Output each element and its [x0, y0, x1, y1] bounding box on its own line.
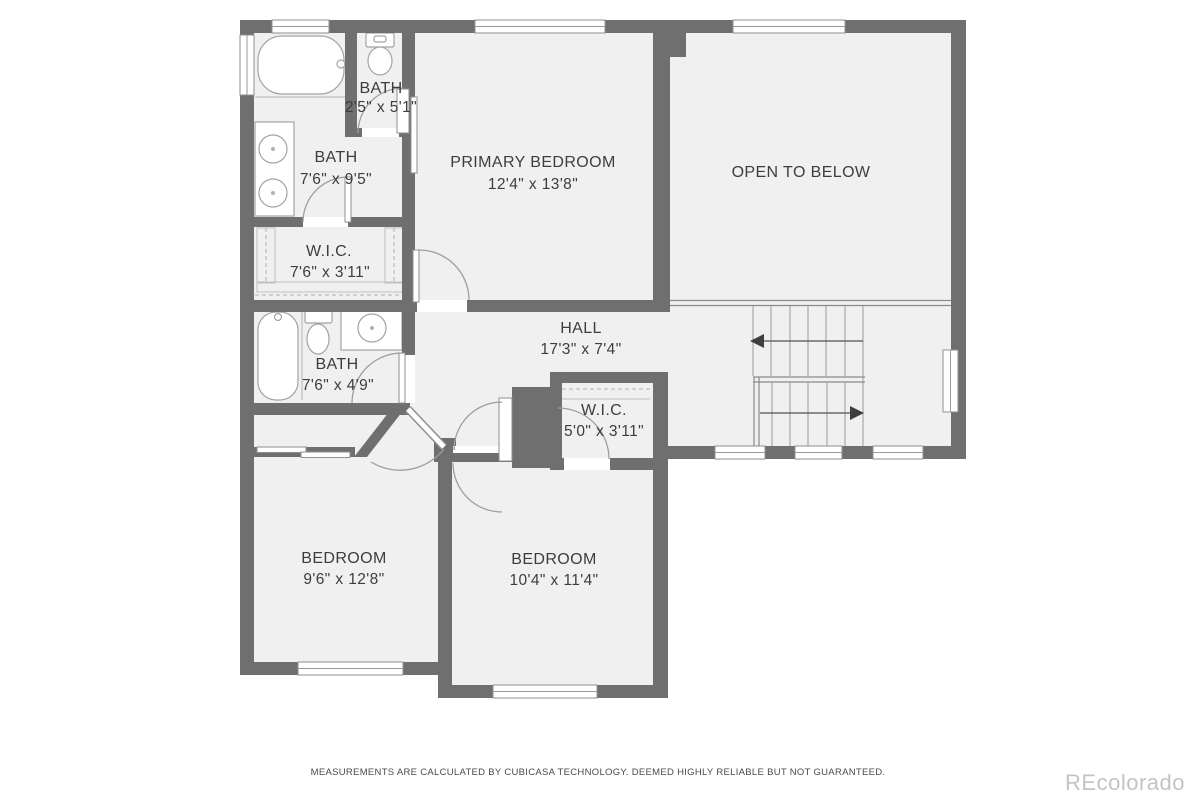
wall-segment [402, 312, 415, 355]
room-label-bath-hall: BATH [315, 356, 358, 373]
toilet-bowl-icon [307, 324, 329, 354]
wall-segment [240, 217, 303, 227]
doorway [362, 128, 399, 137]
room-dims-bath-primary: 7'6" x 9'5" [300, 171, 372, 188]
room-label-wic-hall: W.I.C. [581, 402, 627, 419]
wall-segment [345, 32, 357, 137]
toilet-bowl-icon [368, 47, 392, 75]
room-label-wic-primary: W.I.C. [306, 243, 352, 260]
wall-segment [653, 20, 670, 312]
room-label-hall: HALL [560, 320, 602, 337]
doorway [303, 217, 348, 227]
room-label-primary-bedroom: PRIMARY BEDROOM [450, 154, 615, 171]
wall-segment [550, 372, 562, 468]
door-leaf [499, 398, 512, 461]
room-dims-wic-primary: 7'6" x 3'11" [290, 264, 370, 281]
floor-plan-image: BATH 2'5" x 5'1" BATH 7'6" x 9'5" W.I.C.… [0, 0, 1200, 800]
door-leaf [413, 250, 419, 302]
door-leaf [399, 353, 405, 403]
wall-segment [467, 300, 670, 312]
wall-segment [512, 387, 553, 468]
wall-segment [438, 448, 452, 698]
bathtub-faucet-icon [337, 60, 345, 68]
room-dims-wic-hall: 5'0" x 3'11" [564, 423, 644, 440]
wall-segment [348, 217, 415, 227]
room-dims-bath-hall: 7'6" x 4'9" [302, 377, 374, 394]
room-dims-hall: 17'3" x 7'4" [540, 341, 621, 358]
doorway [564, 458, 610, 470]
sliding-door [257, 447, 306, 453]
recolorado-watermark: REcolorado [1065, 770, 1185, 795]
wall-segment [240, 20, 254, 675]
sink-drain-icon [271, 191, 275, 195]
wall-segment [240, 403, 410, 415]
bathtub-faucet-icon [275, 314, 282, 321]
sink-drain-icon [271, 147, 275, 151]
measurement-disclaimer: MEASUREMENTS ARE CALCULATED BY CUBICASA … [311, 767, 886, 778]
room-dims-primary-bedroom: 12'4" x 13'8" [488, 176, 578, 193]
wall-segment [550, 458, 564, 470]
wall-segment [653, 372, 668, 698]
room-label-bedroom-left: BEDROOM [301, 550, 386, 567]
doorway [453, 446, 500, 453]
wall-segment [550, 372, 662, 383]
room-label-bedroom-right: BEDROOM [511, 551, 596, 568]
bathtub-icon [258, 36, 344, 94]
toilet-button-icon [374, 36, 386, 42]
sliding-door [301, 452, 350, 458]
floor-plan-page: BATH 2'5" x 5'1" BATH 7'6" x 9'5" W.I.C.… [0, 0, 1200, 800]
sink-drain-icon [370, 326, 374, 330]
bathtub-icon [258, 312, 298, 400]
room-dims-bath-small: 2'5" x 5'1" [345, 99, 417, 116]
room-label-bath-primary: BATH [314, 149, 357, 166]
doorway [417, 300, 467, 312]
room-dims-bedroom-right: 10'4" x 11'4" [509, 572, 598, 589]
wall-segment [240, 300, 417, 312]
wall-segment [345, 128, 362, 137]
room-dims-bedroom-left: 9'6" x 12'8" [303, 571, 384, 588]
room-label-open-to-below: OPEN TO BELOW [732, 164, 871, 181]
room-label-bath-small: BATH [359, 80, 402, 97]
